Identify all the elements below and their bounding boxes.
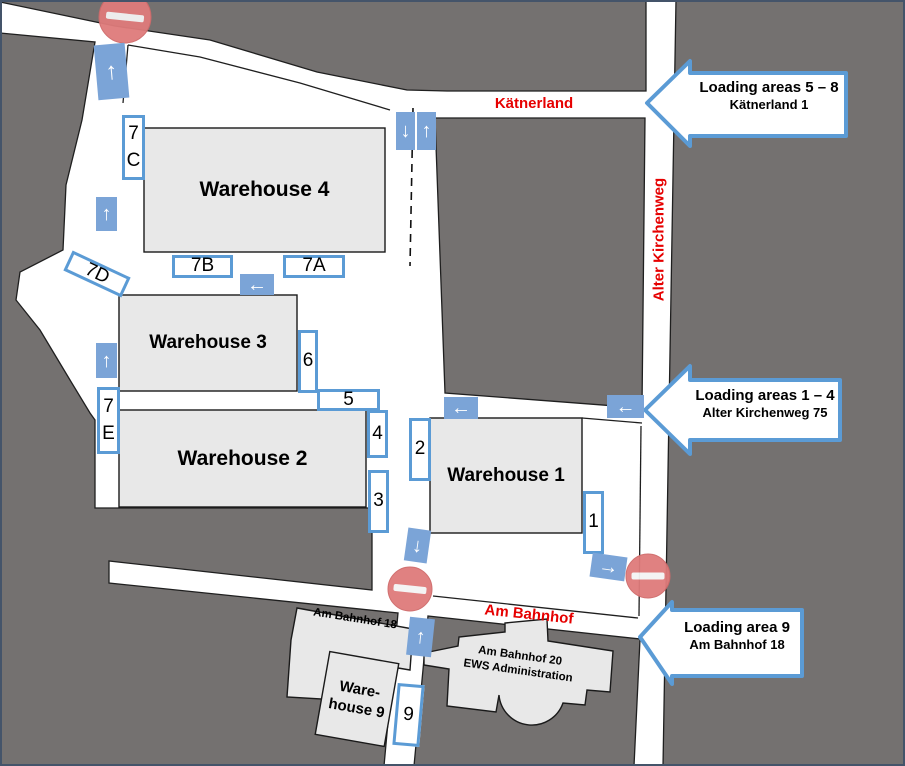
callout-title: Loading areas 5 – 8 <box>694 79 844 96</box>
loading-point-7e-marker: 7E <box>97 387 120 454</box>
callout-address: Alter Kirchenweg 75 <box>691 405 839 420</box>
loading-point-3-marker: 3 <box>368 470 389 533</box>
arrow-left-icon: ← <box>240 274 274 295</box>
loading-point-5-marker: 5 <box>317 389 380 411</box>
arrow-up-icon: ↑ <box>417 112 436 150</box>
arrow-down-icon: ↓ <box>396 112 415 150</box>
callout-address: Kätnerland 1 <box>694 97 844 112</box>
arrow-down-icon: ↓ <box>404 528 431 564</box>
callout-title: Loading area 9 <box>673 619 801 636</box>
warehouse-2-label: Warehouse 2 <box>119 410 366 507</box>
street-name-kaetnerland: Kätnerland <box>474 95 594 112</box>
loading-point-2-marker: 2 <box>409 418 431 481</box>
loading-point-6-marker: 6 <box>298 330 318 393</box>
callout-loading-area-9: Loading area 9 Am Bahnhof 18 <box>673 619 801 652</box>
no-entry-sign <box>388 567 432 611</box>
no-entry-sign <box>626 554 670 598</box>
arrow-up-icon: ↑ <box>94 43 130 100</box>
arrow-left-icon: ← <box>607 395 644 418</box>
warehouse-1-label: Warehouse 1 <box>430 418 582 533</box>
arrow-left-icon: ← <box>444 397 478 419</box>
warehouse-site-map: Warehouse 4 Warehouse 3 Warehouse 2 Ware… <box>0 0 905 766</box>
street-name-alter-kirchenweg: Alter Kirchenweg <box>651 158 668 322</box>
loading-point-7b-marker: 7B <box>172 255 233 278</box>
warehouse-4-label: Warehouse 4 <box>144 128 385 252</box>
arrow-right-icon: → <box>590 553 628 582</box>
callout-loading-areas-5-8: Loading areas 5 – 8 Kätnerland 1 <box>694 79 844 112</box>
loading-point-7c-marker: 7C <box>122 115 145 180</box>
arrow-up-icon: ↑ <box>96 343 117 378</box>
loading-point-9-marker: 9 <box>392 683 424 747</box>
loading-point-7a-marker: 7A <box>283 255 345 278</box>
callout-title: Loading areas 1 – 4 <box>691 387 839 404</box>
arrow-up-icon: ↑ <box>406 617 435 657</box>
gray-block-center <box>435 118 645 408</box>
arrow-up-icon: ↑ <box>96 197 117 231</box>
callout-address: Am Bahnhof 18 <box>673 637 801 652</box>
warehouse-9-label: Ware- house 9 <box>314 654 403 746</box>
loading-point-4-marker: 4 <box>367 410 388 458</box>
callout-loading-areas-1-4: Loading areas 1 – 4 Alter Kirchenweg 75 <box>691 387 839 420</box>
warehouse-3-label: Warehouse 3 <box>119 295 297 391</box>
loading-point-1-marker: 1 <box>583 491 604 554</box>
